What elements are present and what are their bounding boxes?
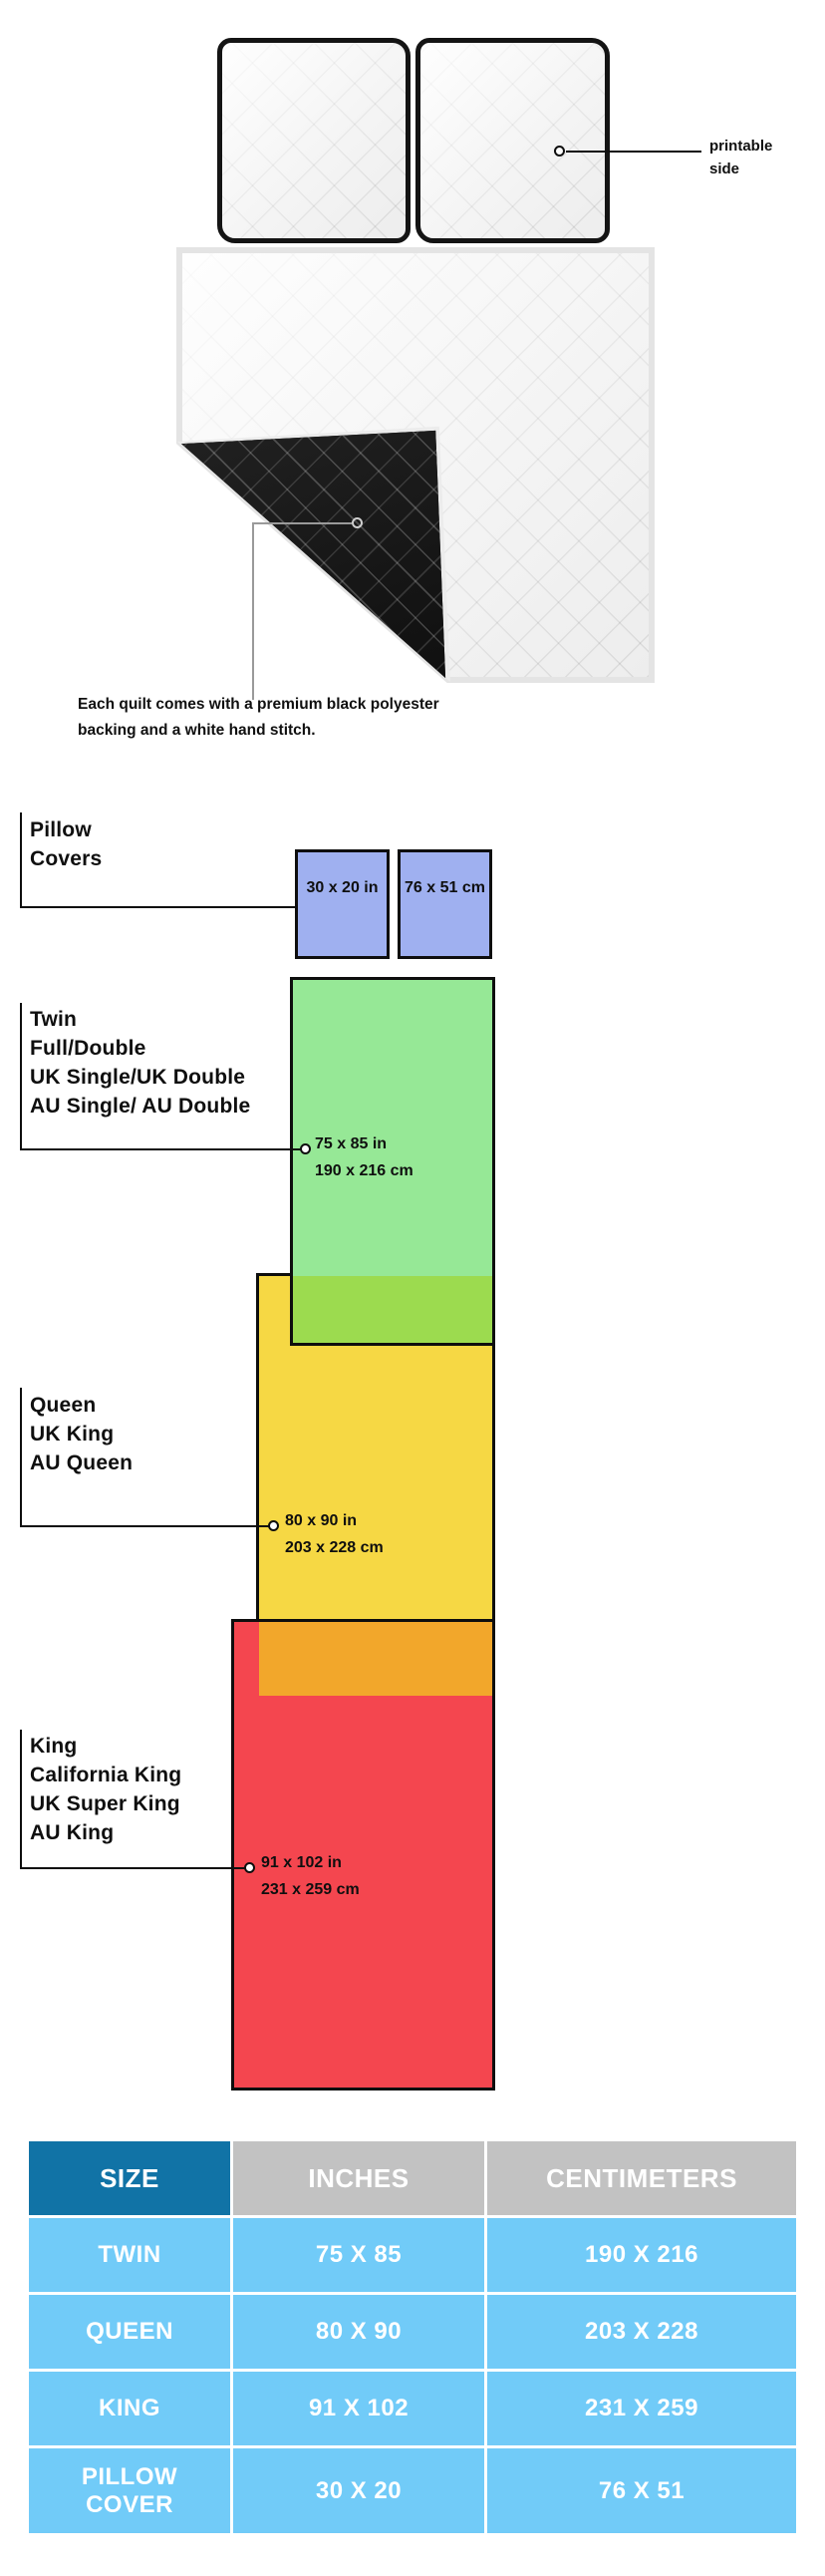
king-bracket-vertical <box>20 1730 22 1869</box>
pillow-cover-size-centimeters: 76 x 51 cm <box>398 879 492 897</box>
king-label: King California King UK Super King AU Ki… <box>30 1732 181 1847</box>
pillow-covers-bracket-vertical <box>20 812 22 908</box>
queen-bracket-vertical <box>20 1388 22 1527</box>
table-header-size: SIZE <box>29 2141 230 2215</box>
twin-label-line: Twin <box>30 1005 250 1034</box>
king-label-line: AU King <box>30 1818 181 1847</box>
twin-label-line: Full/Double <box>30 1034 250 1063</box>
queen-label-line: AU Queen <box>30 1449 133 1477</box>
table-row-twin-size: TWIN <box>29 2218 230 2292</box>
printable-side-marker-circle-icon <box>554 146 565 157</box>
twin-size-label: 75 x 85 in 190 x 216 cm <box>315 1130 413 1184</box>
queen-label: Queen UK King AU Queen <box>30 1391 133 1477</box>
table-row-twin-centimeters: 190 X 216 <box>487 2218 796 2292</box>
king-label-line: California King <box>30 1761 181 1789</box>
pillow-cover-rect-centimeters <box>398 849 492 959</box>
printable-side-label: printable side <box>709 135 799 180</box>
queen-king-overlap-band <box>259 1622 492 1696</box>
pillow-illustration-right <box>415 38 610 243</box>
table-row-king-centimeters: 231 X 259 <box>487 2372 796 2445</box>
backing-marker-circle-icon <box>352 517 363 528</box>
king-size-centimeters: 231 x 259 cm <box>261 1876 360 1903</box>
table-row-pillow-cover-inches: 30 X 20 <box>233 2448 484 2533</box>
pillow-covers-label: Pillow Covers <box>30 815 102 873</box>
table-row-king-size: KING <box>29 2372 230 2445</box>
pillow-cover-size-inches: 30 x 20 in <box>295 879 390 897</box>
twin-label-line: AU Single/ AU Double <box>30 1092 250 1121</box>
king-size-label: 91 x 102 in 231 x 259 cm <box>261 1849 360 1903</box>
pillow-covers-label-line: Covers <box>30 844 102 873</box>
backing-pointer-line-vertical <box>252 522 254 700</box>
king-bracket-horizontal <box>20 1867 245 1869</box>
table-row-king-inches: 91 X 102 <box>233 2372 484 2445</box>
table-header-inches: INCHES <box>233 2141 484 2215</box>
twin-label: Twin Full/Double UK Single/UK Double AU … <box>30 1005 250 1121</box>
table-row-queen-centimeters: 203 X 228 <box>487 2295 796 2369</box>
queen-size-inches: 80 x 90 in <box>285 1507 384 1534</box>
pillow-cover-rect-inches <box>295 849 390 959</box>
backing-caption: Each quilt comes with a premium black po… <box>78 692 456 744</box>
king-label-line: UK Super King <box>30 1789 181 1818</box>
pillow-illustration-left <box>217 38 411 243</box>
king-marker-circle-icon <box>244 1862 255 1873</box>
queen-label-line: Queen <box>30 1391 133 1420</box>
table-row-queen-size: QUEEN <box>29 2295 230 2369</box>
table-row-queen-inches: 80 X 90 <box>233 2295 484 2369</box>
twin-bracket-horizontal <box>20 1148 301 1150</box>
pillow-covers-bracket-horizontal <box>20 906 301 908</box>
pillow-covers-label-line: Pillow <box>30 815 102 844</box>
quilt-size-infographic: printable side Each quilt comes with a p… <box>0 0 825 2576</box>
table-header-centimeters: CENTIMETERS <box>487 2141 796 2215</box>
queen-size-centimeters: 203 x 228 cm <box>285 1534 384 1561</box>
backing-pointer-line-horizontal <box>252 522 352 524</box>
size-table: SIZE INCHES CENTIMETERS TWIN 75 X 85 190… <box>29 2141 796 2533</box>
table-row-pillow-cover-centimeters: 76 X 51 <box>487 2448 796 2533</box>
queen-bracket-horizontal <box>20 1525 269 1527</box>
king-size-inches: 91 x 102 in <box>261 1849 360 1876</box>
printable-side-pointer-line <box>566 151 701 153</box>
table-row-twin-inches: 75 X 85 <box>233 2218 484 2292</box>
twin-label-line: UK Single/UK Double <box>30 1063 250 1092</box>
twin-bracket-vertical <box>20 1003 22 1150</box>
twin-queen-overlap-band <box>293 1276 492 1343</box>
queen-label-line: UK King <box>30 1420 133 1449</box>
twin-size-inches: 75 x 85 in <box>315 1130 413 1157</box>
twin-marker-circle-icon <box>300 1143 311 1154</box>
queen-marker-circle-icon <box>268 1520 279 1531</box>
queen-size-label: 80 x 90 in 203 x 228 cm <box>285 1507 384 1561</box>
twin-size-centimeters: 190 x 216 cm <box>315 1157 413 1184</box>
king-label-line: King <box>30 1732 181 1761</box>
table-row-pillow-cover-size: PILLOW COVER <box>29 2448 230 2533</box>
